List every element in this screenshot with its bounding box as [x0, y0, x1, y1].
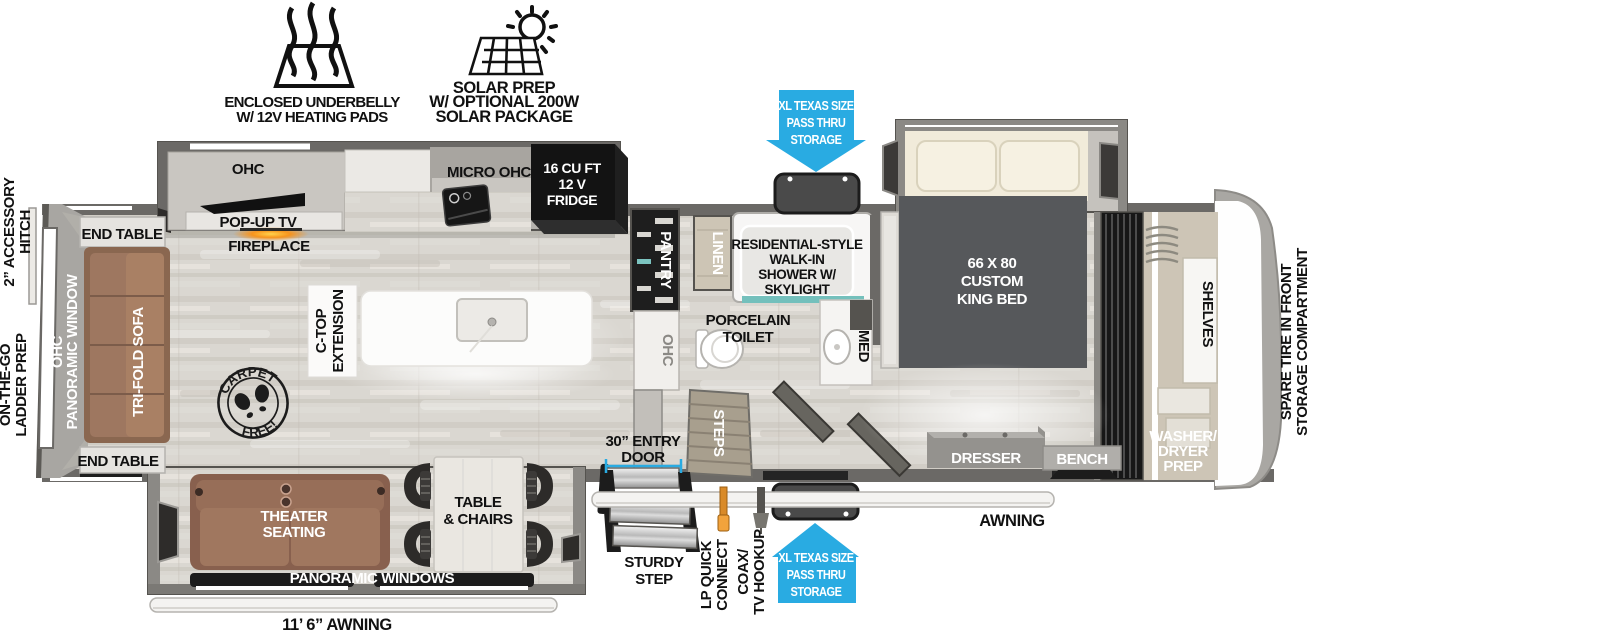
svg-text:30” ENTRY: 30” ENTRY — [605, 433, 680, 450]
svg-text:CUSTOM: CUSTOM — [961, 273, 1023, 290]
svg-text:EXTENSION: EXTENSION — [330, 289, 347, 372]
svg-text:STORAGE COMPARTMENT: STORAGE COMPARTMENT — [1294, 248, 1311, 436]
svg-text:CONNECT: CONNECT — [714, 539, 731, 611]
svg-text:KING BED: KING BED — [957, 291, 1028, 308]
svg-text:PANORAMIC WINDOW: PANORAMIC WINDOW — [64, 273, 81, 429]
svg-text:FRIDGE: FRIDGE — [547, 192, 598, 208]
svg-text:XL TEXAS SIZE: XL TEXAS SIZE — [778, 99, 854, 113]
svg-text:FIREPLACE: FIREPLACE — [228, 238, 310, 255]
svg-text:2” ACCESSORY: 2” ACCESSORY — [1, 177, 18, 287]
svg-text:PREP: PREP — [1163, 458, 1203, 475]
svg-text:BENCH: BENCH — [1056, 451, 1107, 468]
svg-text:DRESSER: DRESSER — [951, 450, 1021, 467]
svg-text:STEP: STEP — [635, 571, 673, 588]
svg-text:XL TEXAS SIZE: XL TEXAS SIZE — [778, 551, 854, 565]
svg-text:SKYLIGHT: SKYLIGHT — [764, 282, 830, 297]
svg-text:SOLAR PACKAGE: SOLAR PACKAGE — [435, 108, 573, 126]
svg-text:STORAGE: STORAGE — [790, 133, 842, 147]
svg-text:PASS THRU: PASS THRU — [787, 568, 846, 582]
svg-text:MICRO OHC: MICRO OHC — [447, 164, 531, 181]
svg-text:16 CU FT: 16 CU FT — [543, 160, 601, 176]
svg-text:COAX/: COAX/ — [735, 548, 752, 595]
svg-text:LINEN: LINEN — [709, 231, 726, 274]
svg-text:THEATER: THEATER — [261, 508, 328, 525]
svg-text:C-TOP: C-TOP — [313, 308, 330, 353]
svg-text:STEPS: STEPS — [710, 409, 727, 457]
svg-text:END TABLE: END TABLE — [77, 453, 159, 470]
svg-text:SHELVES: SHELVES — [1199, 281, 1216, 348]
svg-text:& CHAIRS: & CHAIRS — [443, 511, 513, 528]
svg-text:PASS THRU: PASS THRU — [787, 116, 846, 130]
svg-text:OHC: OHC — [232, 161, 265, 178]
svg-text:OHC: OHC — [659, 334, 676, 367]
svg-text:PORCELAIN: PORCELAIN — [706, 312, 791, 329]
svg-text:TRI-FOLD SOFA: TRI-FOLD SOFA — [130, 307, 147, 417]
svg-text:PANORAMIC WINDOWS: PANORAMIC WINDOWS — [290, 570, 455, 587]
svg-text:RESIDENTIAL-STYLE: RESIDENTIAL-STYLE — [731, 237, 863, 252]
svg-text:W/ 12V HEATING PADS: W/ 12V HEATING PADS — [236, 109, 388, 126]
svg-text:11’ 6” AWNING: 11’ 6” AWNING — [282, 616, 392, 631]
svg-text:AWNING: AWNING — [979, 512, 1044, 530]
svg-text:WALK-IN: WALK-IN — [770, 252, 825, 267]
svg-text:END TABLE: END TABLE — [81, 226, 163, 243]
svg-text:TABLE: TABLE — [455, 494, 502, 511]
svg-text:SEATING: SEATING — [263, 524, 326, 541]
svg-text:MED: MED — [855, 330, 872, 363]
svg-text:LADDER PREP: LADDER PREP — [13, 333, 30, 437]
svg-text:HITCH: HITCH — [17, 210, 34, 254]
svg-text:STURDY: STURDY — [624, 554, 684, 571]
svg-text:STORAGE: STORAGE — [790, 585, 842, 599]
svg-text:SHOWER W/: SHOWER W/ — [758, 267, 836, 282]
svg-text:PANTRY: PANTRY — [657, 231, 674, 289]
svg-text:LP QUICK: LP QUICK — [698, 540, 715, 609]
svg-text:66 X 80: 66 X 80 — [968, 255, 1017, 272]
svg-text:SPARE TIRE IN FRONT: SPARE TIRE IN FRONT — [1278, 264, 1295, 421]
svg-text:ON-THE-GO: ON-THE-GO — [0, 343, 14, 426]
svg-text:TOILET: TOILET — [723, 329, 774, 346]
svg-text:TV HOOKUP: TV HOOKUP — [751, 529, 768, 615]
svg-text:12 V: 12 V — [558, 176, 586, 192]
svg-text:DOOR: DOOR — [621, 449, 665, 466]
